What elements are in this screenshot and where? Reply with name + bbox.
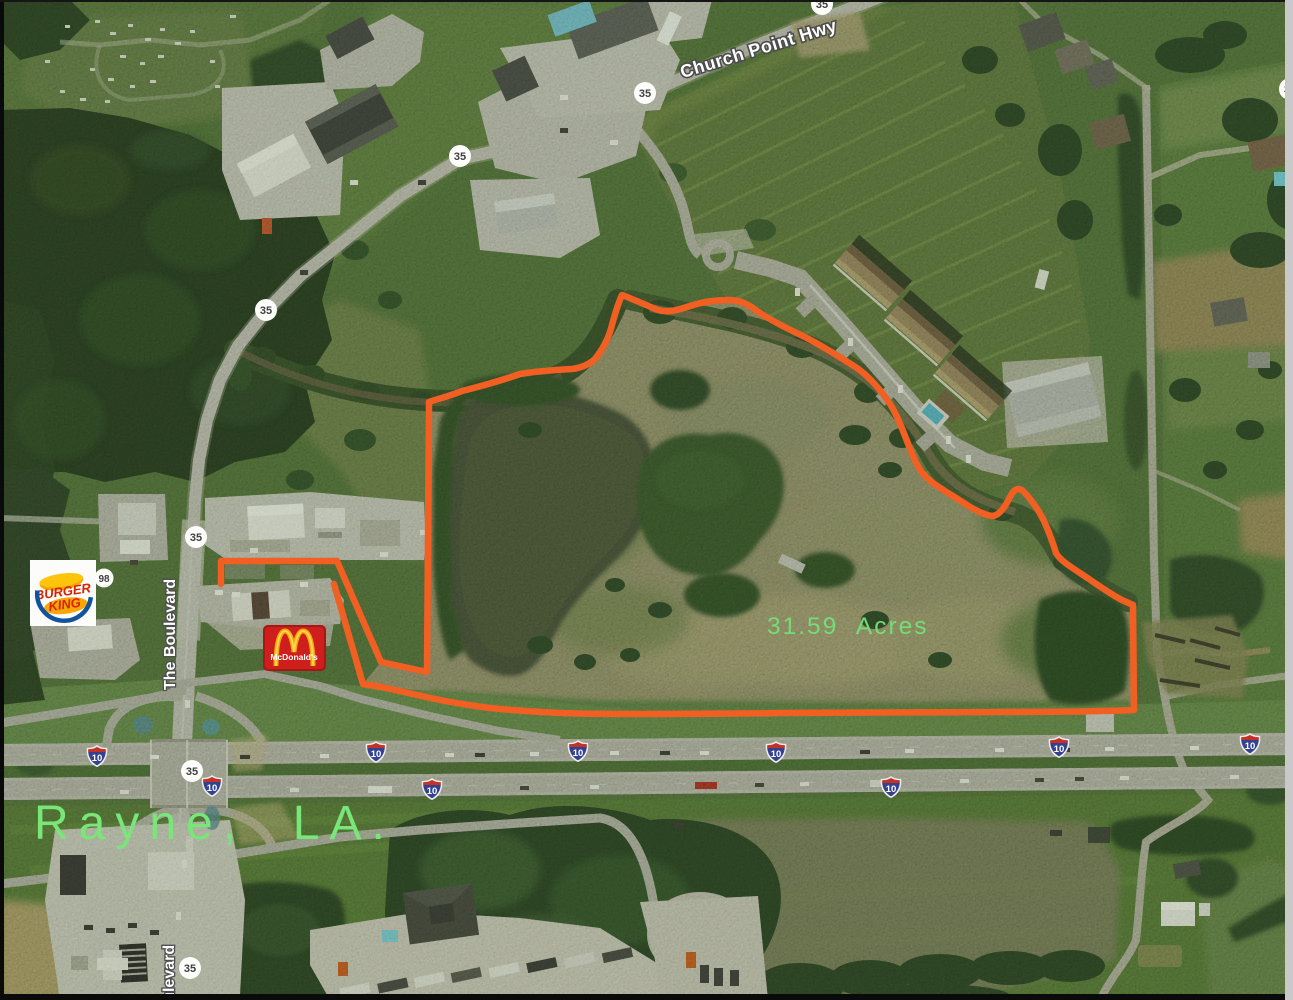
svg-text:The Boulevard: The Boulevard bbox=[162, 579, 179, 690]
svg-text:31.59 Acres: 31.59 Acres bbox=[767, 613, 929, 640]
svg-text:McDonald's: McDonald's bbox=[270, 652, 318, 662]
svg-text:Rayne, LA.: Rayne, LA. bbox=[34, 797, 395, 850]
svg-text:98: 98 bbox=[98, 574, 110, 585]
svg-text:The Boulevard: The Boulevard bbox=[161, 945, 178, 1000]
